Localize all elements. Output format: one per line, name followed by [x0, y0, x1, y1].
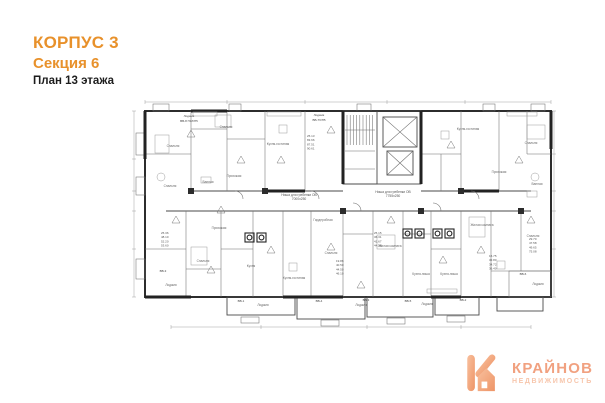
area-value: 75.08	[529, 250, 537, 254]
apartment-tag: Лоджия	[184, 114, 195, 118]
area-value: 36.40	[489, 267, 497, 271]
door-arcs	[235, 191, 479, 211]
room-label: Кухня-гостиная	[457, 127, 480, 131]
corridor-walls	[166, 191, 531, 211]
room-label: Лоджия	[421, 302, 433, 306]
room-label: Кухня-ниша	[412, 272, 430, 276]
apartment-tag: Лоджия	[314, 113, 325, 117]
building-title: КОРПУС 3	[33, 33, 119, 53]
room-label: Лоджия	[165, 283, 177, 287]
apartment-tag: ВВ-3	[363, 298, 370, 302]
area-value: 90.61	[307, 147, 315, 151]
room-label: Кухня	[247, 264, 256, 268]
room-label: Кухня-гостиная	[283, 276, 306, 280]
room-label: Спальня	[220, 125, 233, 129]
elevator-shafts	[383, 117, 417, 175]
area-value: 46.10	[336, 272, 344, 276]
room-marker-triangles	[172, 126, 535, 288]
apartment-tag: ВВ-8 П1б/П5	[180, 119, 198, 123]
room-label: Спальня	[525, 141, 538, 145]
room-label: Кухня-гостиная	[267, 142, 290, 146]
room-label: Ванная	[532, 182, 543, 186]
kitchen-fixtures	[245, 229, 454, 242]
room-label: Прихожая	[212, 226, 227, 230]
apartment-tag: ВВ-2	[460, 298, 467, 302]
floor-title: План 13 этажа	[33, 75, 119, 88]
brand-subtitle: НЕДВИЖИМОСТЬ	[512, 378, 593, 385]
room-label: Спальня	[325, 251, 338, 255]
room-label: Спальня	[197, 259, 210, 263]
plan-annotation: 7755х250	[386, 194, 401, 198]
apartment-tag: ВВ-1	[238, 299, 245, 303]
plan-annotation: 7000х250	[292, 197, 307, 201]
apartment-tag: ВВ-4	[316, 299, 323, 303]
apartment-tag: ВВ-7б/П5	[312, 118, 325, 122]
apartment-tag: ВВ-5	[405, 299, 412, 303]
stair-treads	[345, 115, 375, 169]
brand-text: КРАЙНОВ НЕДВИЖИМОСТЬ	[512, 361, 593, 385]
apartment-tag: ВВ-3	[160, 269, 167, 273]
room-label: Ванная	[203, 180, 214, 184]
room-label: Спальня	[167, 144, 180, 148]
floor-plan: СпальняСпальняКухня-гостинаяКухня-гостин…	[131, 99, 557, 337]
room-label: Кухня-ниша	[440, 272, 458, 276]
room-label: Прихожая	[492, 170, 507, 174]
section-title: Секция 6	[33, 55, 119, 72]
area-value: 44.58	[374, 244, 382, 248]
plan-header: КОРПУС 3 Секция 6 План 13 этажа	[33, 33, 119, 88]
room-label: Лоджия	[355, 303, 367, 307]
plan-labels: СпальняСпальняКухня-гостинаяКухня-гостин…	[160, 113, 544, 307]
stair-elevator-core	[343, 111, 421, 184]
floor-plan-drawing: СпальняСпальняКухня-гостинаяКухня-гостин…	[131, 99, 557, 337]
room-label: Гардеробная	[313, 218, 333, 222]
brand-logo: КРАЙНОВ НЕДВИЖИМОСТЬ	[466, 353, 593, 393]
area-value: 53.60	[161, 244, 169, 248]
room-label: Жилая комната	[470, 223, 493, 227]
room-label: Лоджия	[532, 282, 544, 286]
brand-name: КРАЙНОВ	[512, 361, 593, 376]
room-label: Прихожая	[227, 174, 242, 178]
krainov-house-k-icon	[466, 353, 499, 393]
apartment-tag: ВВ-6	[520, 272, 527, 276]
room-label: Лоджия	[257, 303, 269, 307]
room-label: Жилая комната	[378, 244, 401, 248]
room-label: Спальня	[164, 184, 177, 188]
